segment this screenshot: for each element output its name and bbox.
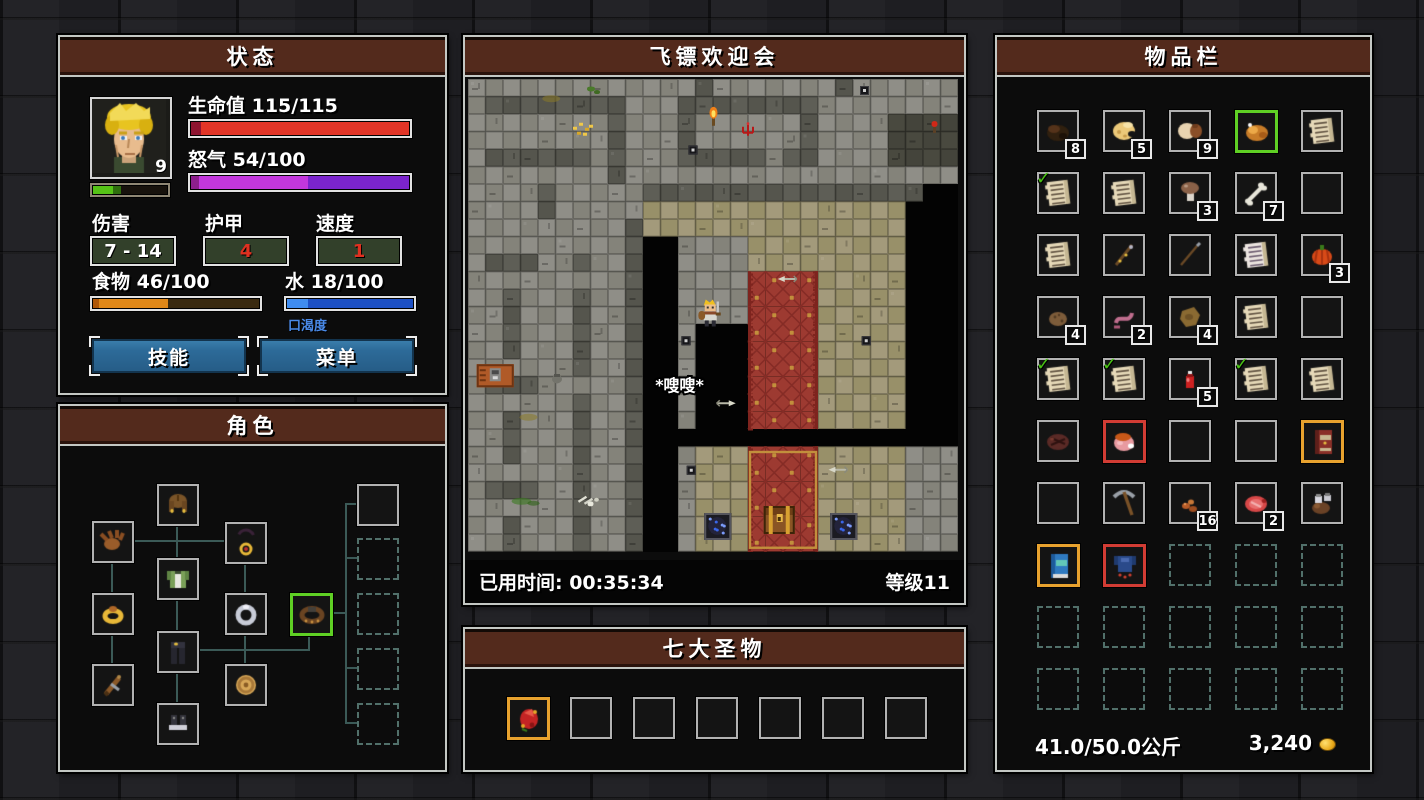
inventory-slot-26[interactable] [1037,420,1079,462]
armor-blue-icon [1105,546,1145,586]
ham-icon [1105,422,1145,462]
ring-silver-icon [226,594,266,634]
food-label: 食物 46/100 [92,267,210,294]
helm-hair-icon [158,485,198,525]
map-footer: 已用时间: 00:35:34 等级11 [465,560,964,603]
count-badge: 8 [1065,139,1086,159]
inventory-slot-3[interactable]: 9 [1169,110,1211,152]
equipment-slot-extra-5[interactable] [357,703,399,745]
character-panel: 角色 [58,404,447,772]
map-panel-header: 飞镖欢迎会 [465,37,964,77]
jars-icon [1302,483,1342,523]
relic-slot-4[interactable] [696,697,738,739]
menu-button[interactable]: 菜单 [260,339,414,373]
steak-dark-icon [1038,421,1078,461]
water-bar [284,296,416,311]
scroll-icon [1302,359,1342,399]
count-badge: 16 [1197,511,1218,531]
food-bar [90,296,262,311]
inventory-slot-31[interactable] [1037,482,1079,524]
inventory-slot-15[interactable]: 3 [1301,234,1343,276]
pickaxe-icon [1104,483,1144,523]
damage-label: 伤害 [92,209,130,236]
equipment-slot-ring-right[interactable] [225,593,267,635]
inventory-slot-41[interactable] [1037,606,1079,648]
inventory-slot-28[interactable] [1169,420,1211,462]
equipment-connector [345,503,347,723]
inventory-slot-44[interactable] [1235,606,1277,648]
equipment-connector [111,561,113,593]
wand-icon [1104,235,1144,275]
dungeon-level: 等级11 [886,568,950,595]
equipment-slot-extra-4[interactable] [357,648,399,690]
shield-round-icon [226,665,266,705]
equipment-connector [345,557,357,559]
equipment-connector [197,649,310,651]
count-badge: 3 [1329,263,1350,283]
inventory-slot-16[interactable]: 4 [1037,296,1079,338]
xp-bar [90,183,170,197]
skills-button[interactable]: 技能 [92,339,246,373]
count-badge: 5 [1197,387,1218,407]
equipment-slot-gloves[interactable] [92,521,134,563]
tunic-icon [158,559,198,599]
money-indicator: 3,240 [1249,731,1336,755]
equipment-connector [176,598,178,631]
equipment-connector [176,671,178,703]
inventory-slot-4[interactable] [1235,110,1278,153]
amulet-icon [226,523,266,563]
equipment-connector [345,722,357,724]
equipment-connector [345,503,357,505]
equipment-tree [60,406,445,770]
equipment-connector [111,633,113,664]
scroll-icon [1302,111,1342,151]
count-badge: 5 [1131,139,1152,159]
speed-value: 1 [316,236,402,266]
inventory-slot-23[interactable]: 5 [1169,358,1211,400]
tome-blue-icon [1039,546,1079,586]
count-badge: 4 [1197,325,1218,345]
water-label: 水 18/100 [285,267,384,294]
inventory-slot-12[interactable] [1103,234,1145,276]
count-badge: 7 [1263,201,1284,221]
equipment-slot-extra-2[interactable] [357,538,399,580]
damage-value: 7 - 14 [90,236,176,266]
inventory-slot-49[interactable] [1235,668,1277,710]
check-icon: ✓ [1036,354,1051,375]
inventory-slot-22[interactable]: ✓ [1103,358,1145,400]
equipment-slot-pants[interactable] [157,631,199,673]
count-badge: 9 [1197,139,1218,159]
inventory-slot-20[interactable] [1301,296,1343,338]
equipment-slot-extra-3[interactable] [357,593,399,635]
inventory-slot-40[interactable] [1301,544,1343,586]
inventory-panel: 物品栏 859✓373424✓✓5✓162 41.0/50.0公斤 3,240 [995,35,1372,772]
tome-red-icon [1303,422,1343,462]
relic-slot-5[interactable] [759,697,801,739]
roast-icon [1237,112,1277,152]
equipment-slot-extra-1[interactable] [357,484,399,526]
inventory-slot-1[interactable]: 8 [1037,110,1079,152]
equipment-slot-ring-left[interactable] [92,593,134,635]
gold-coin-icon [1319,738,1336,751]
inventory-slot-45[interactable] [1301,606,1343,648]
equipment-connector [345,667,357,669]
relic-slot-7[interactable] [885,697,927,739]
equipment-slot-amulet[interactable] [225,522,267,564]
map-title: 飞镖欢迎会 [650,41,780,71]
inventory-slot-47[interactable] [1103,668,1145,710]
scroll-icon [1038,235,1078,275]
equipment-slot-belt[interactable] [290,593,333,636]
equipment-slot-boots[interactable] [157,703,199,745]
count-badge: 4 [1065,325,1086,345]
inventory-slot-18[interactable]: 4 [1169,296,1211,338]
check-icon: ✓ [1102,354,1117,375]
health-label: 生命值 115/115 [188,91,338,118]
inventory-slot-27[interactable] [1103,420,1146,463]
gloves-icon [93,522,133,562]
game-screen: 状态 9 生命值 115/115 怒气 54/100 伤害 护甲 速度 7 - … [0,0,1424,800]
check-icon: ✓ [1234,354,1249,375]
inventory-slot-38[interactable] [1169,544,1211,586]
inventory-slot-10[interactable] [1301,172,1343,214]
equipment-slot-helmet[interactable] [157,484,199,526]
equipment-slot-shield[interactable] [225,664,267,706]
elapsed-time: 已用时间: 00:35:34 [479,568,664,595]
count-badge: 2 [1131,325,1152,345]
relic-red-icon [509,699,549,739]
money-amount: 3,240 [1249,731,1312,755]
inventory-slot-19[interactable] [1235,296,1277,338]
inventory-slot-42[interactable] [1103,606,1145,648]
inventory-slot-24[interactable]: ✓ [1235,358,1277,400]
scroll-pale-icon [1236,235,1276,275]
count-badge: 3 [1197,201,1218,221]
pants-icon [158,632,198,672]
map-panel: 飞镖欢迎会 已用时间: 00:35:34 等级11 [463,35,966,605]
equipment-slot-weapon[interactable] [92,664,134,706]
relic-slot-1[interactable] [507,697,550,740]
inventory-slot-7[interactable] [1103,172,1145,214]
inventory-slot-35[interactable] [1301,482,1343,524]
relic-slot-3[interactable] [633,697,675,739]
portrait-level: 9 [155,157,167,177]
inventory-slot-8[interactable]: 3 [1169,172,1211,214]
inventory-slot-9[interactable]: 7 [1235,172,1277,214]
armor-value: 4 [203,236,289,266]
belt-icon [292,595,332,635]
inventory-slot-43[interactable] [1169,606,1211,648]
sword-wood-icon [93,665,133,705]
equipment-connector [132,540,225,542]
character-portrait[interactable]: 9 [90,97,172,179]
equipment-connector [244,562,246,593]
inventory-slot-13[interactable] [1169,234,1211,276]
inventory-slot-14[interactable] [1235,234,1277,276]
relics-row [465,629,964,770]
inventory-slot-2[interactable]: 5 [1103,110,1145,152]
rage-label: 怒气 54/100 [188,145,306,172]
ring-gold-icon [93,594,133,634]
speed-label: 速度 [316,209,354,236]
health-bar [188,119,412,138]
inventory-slot-39[interactable] [1235,544,1277,586]
status-panel: 状态 9 生命值 115/115 怒气 54/100 伤害 护甲 速度 7 - … [58,35,447,395]
inventory-slot-21[interactable]: ✓ [1037,358,1079,400]
scroll-icon [1236,297,1276,337]
rage-bar [188,173,412,192]
inventory-slot-37[interactable] [1103,544,1146,587]
equipment-slot-chest-armor[interactable] [157,558,199,600]
inventory-slot-11[interactable] [1037,234,1079,276]
armor-label: 护甲 [205,209,243,236]
relic-slot-2[interactable] [570,697,612,739]
relic-slot-6[interactable] [822,697,864,739]
thirst-label: 口渴度 [288,315,327,334]
boots-icon [158,704,198,744]
dungeon-map[interactable] [468,79,958,552]
spear-icon [1170,235,1210,275]
count-badge: 2 [1263,511,1284,531]
inventory-slot-33[interactable]: 16 [1169,482,1211,524]
relics-panel: 七大圣物 [463,627,966,772]
inventory-grid: 859✓373424✓✓5✓162 [997,37,1370,770]
inventory-slot-6[interactable]: ✓ [1037,172,1079,214]
inventory-slot-25[interactable] [1301,358,1343,400]
inventory-slot-48[interactable] [1169,668,1211,710]
check-icon: ✓ [1036,168,1051,189]
inventory-slot-36[interactable] [1037,544,1080,587]
inventory-slot-5[interactable] [1301,110,1343,152]
inventory-slot-30[interactable] [1301,420,1344,463]
inventory-slot-46[interactable] [1037,668,1079,710]
weight-indicator: 41.0/50.0公斤 [1035,731,1181,760]
inventory-slot-17[interactable]: 2 [1103,296,1145,338]
inventory-slot-34[interactable]: 2 [1235,482,1277,524]
scroll-icon [1104,173,1144,213]
inventory-slot-50[interactable] [1301,668,1343,710]
inventory-slot-29[interactable] [1235,420,1277,462]
inventory-slot-32[interactable] [1103,482,1145,524]
